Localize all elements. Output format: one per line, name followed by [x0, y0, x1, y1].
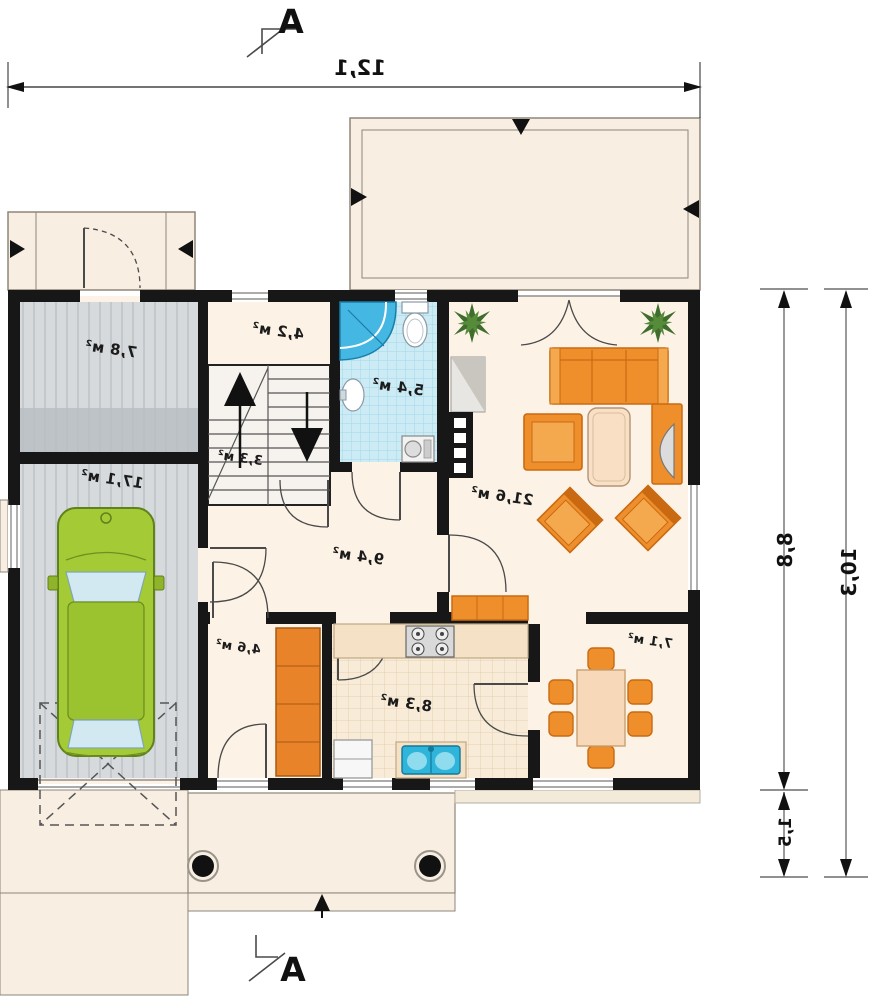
kitchen-sink: [402, 746, 460, 774]
chair: [549, 680, 573, 704]
dining-table: [577, 670, 625, 746]
sideboard: [452, 596, 528, 620]
chair: [549, 712, 573, 736]
door-bottom-corridor: [217, 778, 268, 790]
toilet: [402, 302, 428, 347]
floor-plan-drawing: [0, 0, 869, 1000]
window-garage-left: [0, 500, 20, 572]
staircase: [208, 365, 330, 505]
car-mirror-left: [48, 576, 58, 590]
washing-machine: [402, 436, 434, 462]
window-bottom-kitchen-2: [430, 778, 475, 790]
car-mirror-right: [154, 576, 164, 590]
dimension-total-width: 12,1: [315, 56, 405, 80]
chair: [588, 746, 614, 768]
terrace: [350, 118, 700, 290]
section-letter-bottom: A: [268, 950, 318, 989]
window-bottom-dining: [533, 778, 613, 790]
car: [48, 508, 164, 757]
chair: [588, 648, 614, 670]
coffee-table: [588, 408, 630, 486]
sofa: [550, 348, 668, 404]
window-top-hall: [232, 290, 268, 302]
window-living-right: [688, 485, 700, 590]
dimension-total-depth: 10,3: [837, 537, 861, 607]
entrance-porch: [188, 793, 455, 918]
armchair: [524, 414, 582, 470]
chair: [628, 712, 652, 736]
floor-plan-page: A A 12,1 8,8 10,3 1,5 7,8 м² 4,2 м² 3,3 …: [0, 0, 869, 1000]
stove: [406, 626, 454, 657]
section-letter-top: A: [266, 2, 316, 41]
window-bottom-kitchen-1: [343, 778, 392, 790]
dimension-porch-depth: 1,5: [776, 797, 796, 867]
dimension-house-depth: 8,8: [773, 515, 797, 585]
porch-column: [419, 855, 441, 877]
fridge: [334, 740, 372, 778]
driveway: [0, 790, 188, 995]
window-top-bathroom: [395, 290, 427, 302]
porch-column: [192, 855, 214, 877]
rear-sill: [455, 790, 700, 803]
side-porch: [8, 212, 195, 290]
tv-stand: [652, 404, 682, 484]
chair: [628, 680, 652, 704]
